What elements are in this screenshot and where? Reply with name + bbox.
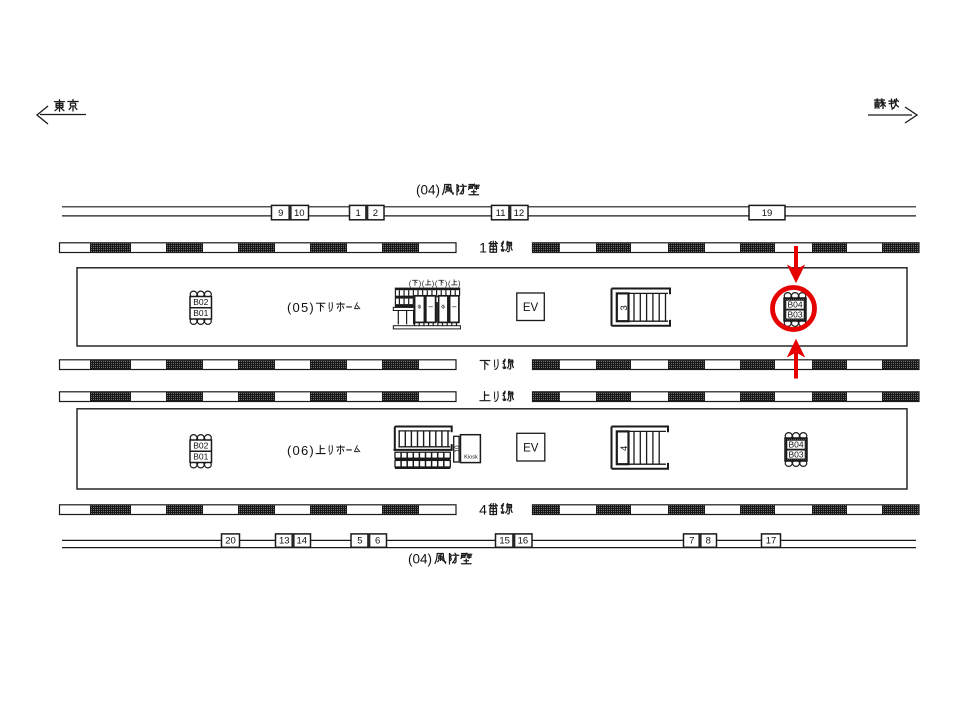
svg-text:Kiosk: Kiosk <box>464 455 478 461</box>
svg-text:B04: B04 <box>787 300 802 310</box>
svg-text:2: 2 <box>373 208 378 219</box>
svg-text:(04): (04) <box>416 183 440 198</box>
svg-text:B02: B02 <box>193 297 208 307</box>
svg-text:14: 14 <box>296 536 307 547</box>
svg-text:12: 12 <box>514 208 525 219</box>
svg-text:4: 4 <box>479 502 487 518</box>
svg-text:13: 13 <box>279 536 290 547</box>
svg-text:6: 6 <box>375 536 380 547</box>
svg-text:9: 9 <box>278 208 283 219</box>
svg-text:EV: EV <box>523 302 539 314</box>
svg-text:B04: B04 <box>788 440 803 450</box>
svg-text:B01: B01 <box>193 308 208 318</box>
svg-text:7: 7 <box>689 536 694 547</box>
svg-text:5: 5 <box>357 536 362 547</box>
svg-text:(06): (06) <box>287 443 315 458</box>
svg-text:B02: B02 <box>193 441 208 451</box>
svg-text:B01: B01 <box>193 452 208 462</box>
svg-text:B03: B03 <box>788 450 803 460</box>
svg-text:19: 19 <box>762 208 773 219</box>
svg-text:20: 20 <box>225 536 236 547</box>
svg-text:3: 3 <box>619 305 630 310</box>
svg-text:1: 1 <box>355 208 360 219</box>
svg-text:16: 16 <box>518 536 529 547</box>
svg-text:10: 10 <box>294 208 305 219</box>
svg-text:15: 15 <box>499 536 510 547</box>
svg-text:4: 4 <box>619 446 630 451</box>
svg-text:B03: B03 <box>787 310 802 320</box>
svg-text:1: 1 <box>479 240 487 256</box>
svg-text:11: 11 <box>496 208 506 219</box>
svg-text:(05): (05) <box>287 300 315 315</box>
svg-text:8: 8 <box>706 536 711 547</box>
svg-text:EV: EV <box>523 443 539 455</box>
svg-text:17: 17 <box>766 536 777 547</box>
svg-text:(04): (04) <box>408 552 432 567</box>
